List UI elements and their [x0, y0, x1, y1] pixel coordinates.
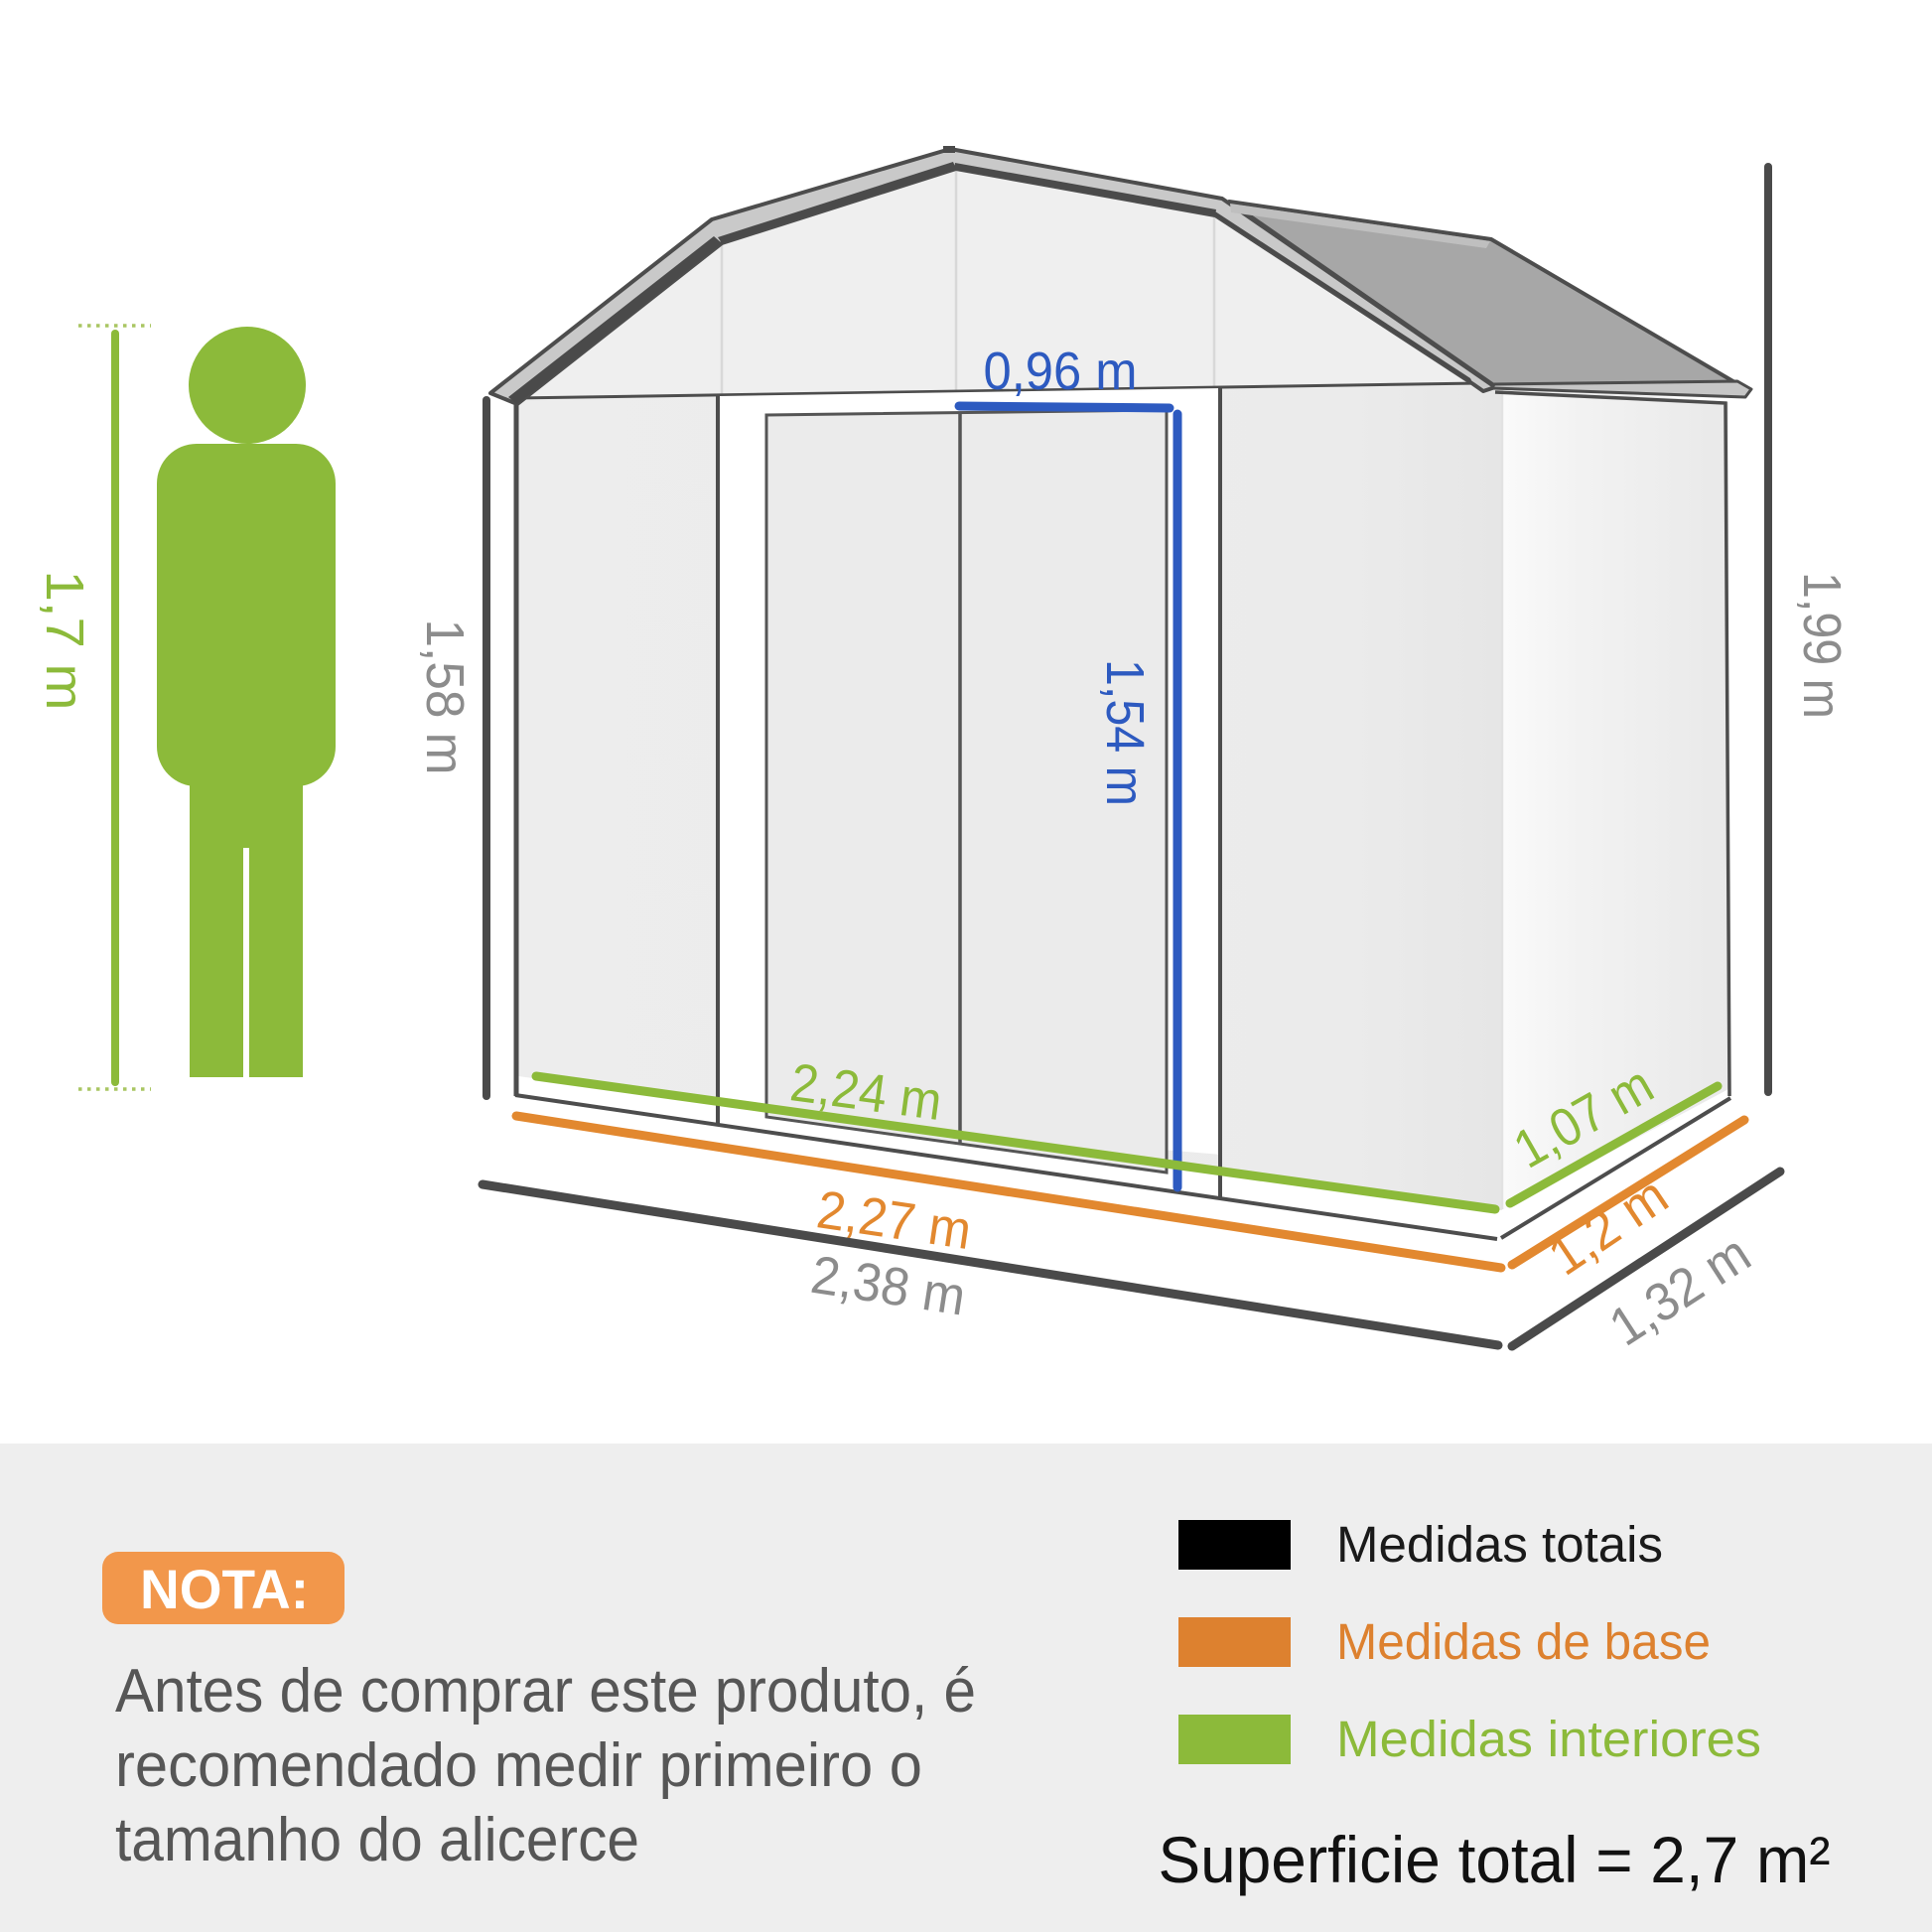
- svg-text:Antes de comprar este produto,: Antes de comprar este produto, é: [115, 1657, 976, 1725]
- svg-text:1,58 m: 1,58 m: [415, 620, 475, 775]
- svg-text:1,54 m: 1,54 m: [1095, 659, 1155, 806]
- svg-text:NOTA:: NOTA:: [140, 1558, 309, 1620]
- svg-text:1,99 m: 1,99 m: [1792, 572, 1852, 719]
- svg-text:1,7 m: 1,7 m: [35, 571, 94, 711]
- svg-text:Superficie total = 2,7 m²: Superficie total = 2,7 m²: [1159, 1823, 1831, 1896]
- svg-text:Medidas totais: Medidas totais: [1336, 1516, 1663, 1573]
- svg-text:tamanho do alicerce: tamanho do alicerce: [115, 1806, 639, 1874]
- svg-text:0,96 m: 0,96 m: [984, 342, 1138, 401]
- svg-text:Medidas interiores: Medidas interiores: [1336, 1711, 1761, 1767]
- svg-text:Medidas de base: Medidas de base: [1336, 1613, 1711, 1670]
- svg-text:recomendado medir primeiro o: recomendado medir primeiro o: [115, 1731, 922, 1800]
